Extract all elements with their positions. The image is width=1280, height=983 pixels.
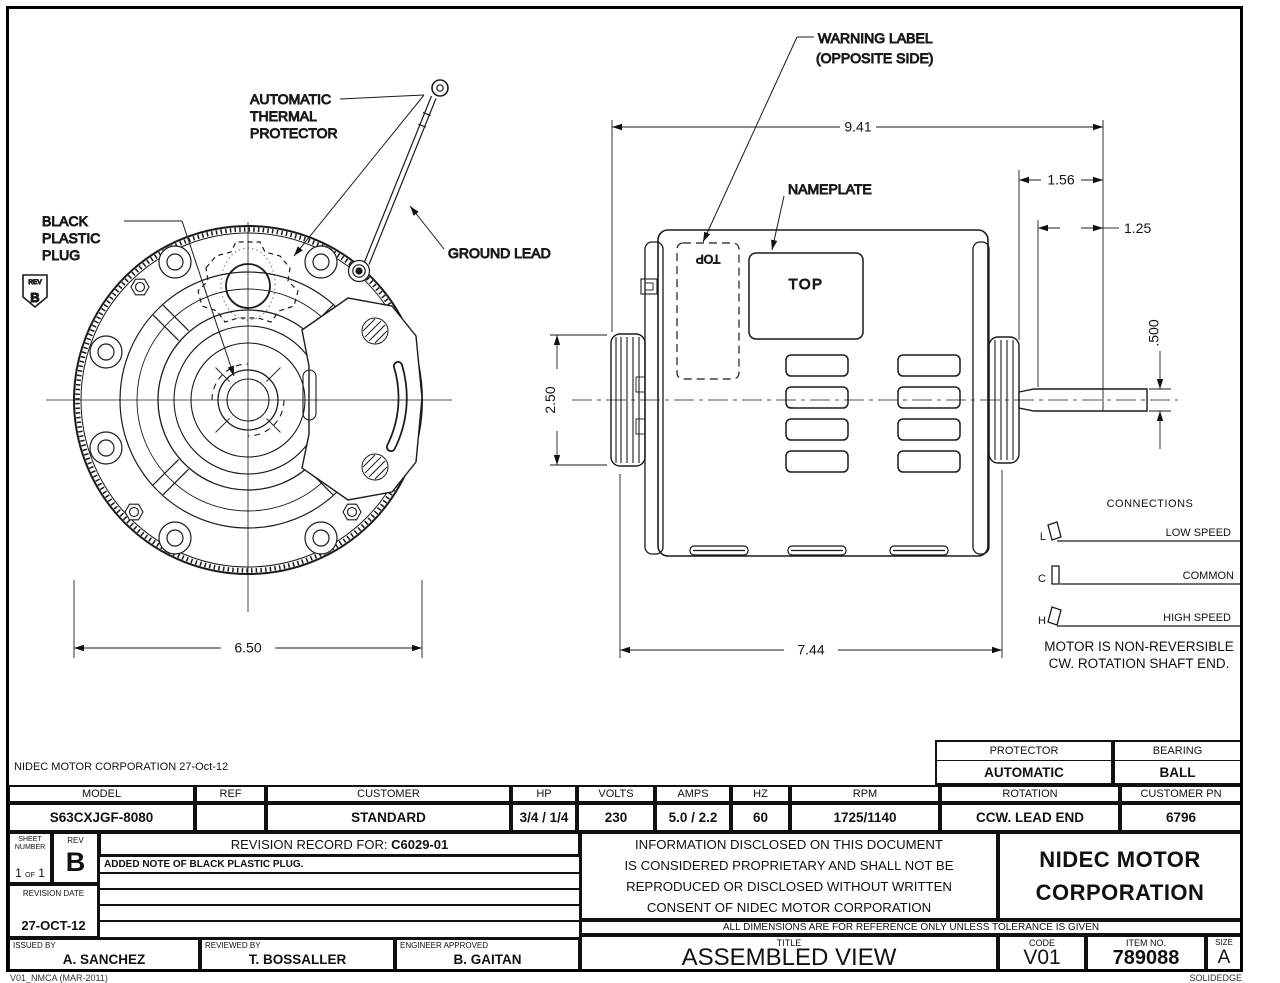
spec-header-hp: HP	[511, 785, 577, 803]
rev-flag: REV B	[23, 275, 47, 307]
spec-value-model: S63CXJGF-8080	[8, 803, 195, 832]
svg-text:(OPPOSITE SIDE): (OPPOSITE SIDE)	[816, 50, 933, 66]
spec-value-hz: 60	[731, 803, 790, 832]
item-no-cell: ITEM NO. 789088	[1086, 935, 1206, 972]
revision-empty-row	[99, 889, 580, 905]
svg-text:.500: .500	[1146, 319, 1162, 346]
right-end-bell	[973, 242, 989, 554]
drawing-sheet: AUTOMATIC THERMAL PROTECTOR BLACK PLASTI…	[0, 0, 1280, 983]
rev-cell: REV B	[52, 832, 99, 884]
revision-empty-row	[99, 873, 580, 889]
svg-text:CW. ROTATION SHAFT END.: CW. ROTATION SHAFT END.	[1049, 656, 1230, 671]
bearing-cell: BEARING BALL	[1113, 740, 1242, 785]
dim-body-length: 7.44	[620, 470, 1002, 658]
cad-system-note: SOLIDEDGE	[1189, 973, 1242, 983]
rotation-note: MOTOR IS NON-REVERSIBLE	[1044, 639, 1234, 654]
company-name: NIDEC MOTOR CORPORATION	[998, 832, 1242, 920]
terminal-lug-icon	[1052, 566, 1059, 584]
svg-text:2.50: 2.50	[542, 386, 558, 413]
spec-header-model: MODEL	[8, 785, 195, 803]
nameplate	[749, 253, 863, 339]
svg-text:1.25: 1.25	[1124, 220, 1151, 236]
dim-shaft-extension: 1.56	[1019, 170, 1103, 340]
plug-label: BLACK	[42, 213, 89, 229]
cover-plate	[302, 298, 422, 500]
reviewed-by-cell: REVIEWED BY T. BOSSALLER	[200, 938, 395, 972]
tolerance-note: ALL DIMENSIONS ARE FOR REFERENCE ONLY UN…	[580, 920, 1242, 935]
svg-text:B: B	[30, 290, 39, 305]
spec-value-amps: 5.0 / 2.2	[655, 803, 731, 832]
nameplate-text: TOP	[788, 276, 823, 293]
warning-callout: WARNING LABEL	[818, 30, 933, 46]
corp-date-note: NIDEC MOTOR CORPORATION 27-Oct-12	[14, 761, 228, 773]
protector-value: AUTOMATIC	[937, 761, 1111, 783]
form-number-note: V01_NMCA (MAR-2011)	[10, 973, 108, 983]
svg-text:PLASTIC: PLASTIC	[42, 230, 100, 246]
vent-slots	[786, 355, 960, 472]
bearing-label: BEARING	[1115, 742, 1240, 761]
spec-value-rotation: CCW. LEAD END	[940, 803, 1120, 832]
svg-text:1.56: 1.56	[1047, 172, 1074, 188]
dim-overall-length: 9.41	[612, 119, 1103, 412]
spec-header-hz: HZ	[731, 785, 790, 803]
nameplate-callout: NAMEPLATE	[788, 181, 872, 197]
revision-empty-row	[99, 905, 580, 921]
svg-text:7.44: 7.44	[797, 642, 824, 658]
spec-value-rpm: 1725/1140	[790, 803, 940, 832]
spec-value-hp: 3/4 / 1/4	[511, 803, 577, 832]
bottom-slots	[690, 546, 948, 555]
revision-record-header: REVISION RECORD FOR: C6029-01	[99, 832, 580, 856]
side-view: TOP TOP WARNING LABEL (OPPOSITE SIDE) NA…	[572, 30, 1178, 556]
svg-text:6.50: 6.50	[234, 640, 261, 656]
dim-shaft-diameter: .500	[1146, 319, 1172, 449]
warning-sticker-text: TOP	[696, 252, 720, 266]
sheet-number-cell: SHEET NUMBER 1 OF 1	[8, 832, 52, 884]
terminal-letter: C	[1038, 573, 1046, 585]
engineer-approved-cell: ENGINEER APPROVED B. GAITAN	[395, 938, 580, 972]
spec-value-customer: STANDARD	[266, 803, 511, 832]
spec-header-volts: VOLTS	[577, 785, 655, 803]
dim-shaft-flat: 1.25	[1038, 220, 1151, 387]
spec-header-rotation: ROTATION	[940, 785, 1120, 803]
spec-header-ref: REF	[195, 785, 266, 803]
thermal-label: AUTOMATIC	[250, 91, 331, 107]
issued-by-cell: ISSUED BY A. SANCHEZ	[8, 938, 200, 972]
protector-cell: PROTECTOR AUTOMATIC	[935, 740, 1113, 785]
speed-label: HIGH SPEED	[1163, 612, 1231, 624]
terminal-lug-icon	[1048, 522, 1061, 540]
terminal-letter: H	[1038, 615, 1046, 627]
speed-label: LOW SPEED	[1166, 527, 1231, 539]
ground-lead-label: GROUND LEAD	[448, 245, 551, 261]
title-cell: TITLE ASSEMBLED VIEW	[580, 935, 998, 972]
svg-text:REV: REV	[28, 279, 42, 286]
revision-empty-row	[99, 921, 580, 938]
svg-text:PROTECTOR: PROTECTOR	[250, 125, 338, 141]
spec-value-volts: 230	[577, 803, 655, 832]
spec-value-customer-pn: 6796	[1120, 803, 1242, 832]
spec-header-amps: AMPS	[655, 785, 731, 803]
size-cell: SIZE A	[1206, 935, 1242, 972]
left-end-bell	[645, 242, 663, 554]
code-cell: CODE V01	[998, 935, 1086, 972]
side-leaders	[703, 37, 814, 250]
revision-date-cell: REVISION DATE 27-OCT-12	[8, 884, 99, 938]
speed-label: COMMON	[1183, 570, 1234, 582]
spec-header-customer: CUSTOMER	[266, 785, 511, 803]
spec-value-ref	[195, 803, 266, 832]
svg-text:PLUG: PLUG	[42, 247, 80, 263]
proprietary-notice: INFORMATION DISCLOSED ON THIS DOCUMENT I…	[580, 832, 998, 920]
svg-text:9.41: 9.41	[844, 119, 871, 135]
spec-header-rpm: RPM	[790, 785, 940, 803]
connections-title: CONNECTIONS	[1107, 498, 1194, 510]
ring-terminal	[432, 80, 448, 96]
ground-lead	[349, 80, 449, 282]
terminal-letter: L	[1040, 531, 1046, 543]
revision-note-row: ADDED NOTE OF BLACK PLASTIC PLUG.	[99, 856, 580, 873]
bearing-value: BALL	[1115, 761, 1240, 783]
connections-diagram: CONNECTIONS L LOW SPEED C COMMON H HIGH …	[1038, 498, 1241, 671]
front-view: AUTOMATIC THERMAL PROTECTOR BLACK PLASTI…	[23, 80, 551, 612]
spec-header-customer-pn: CUSTOMER PN	[1120, 785, 1242, 803]
terminal-lug-icon	[1048, 607, 1061, 625]
protector-label: PROTECTOR	[937, 742, 1111, 761]
svg-text:THERMAL: THERMAL	[250, 108, 317, 124]
